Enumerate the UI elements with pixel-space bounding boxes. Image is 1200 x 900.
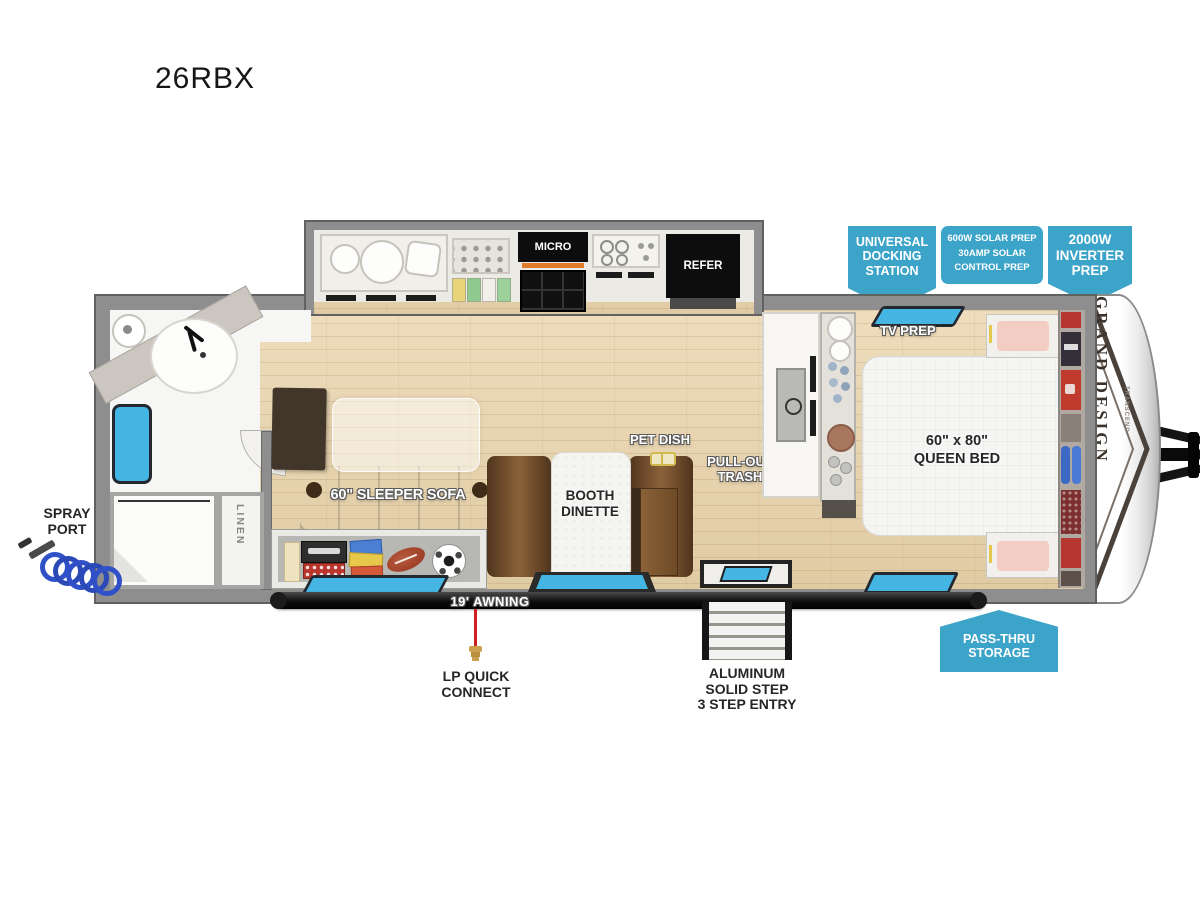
cabinet-handle	[989, 325, 992, 343]
dish-plate-large	[360, 240, 404, 284]
cabinet-handle	[989, 545, 992, 563]
lp-quick-connect-label: LP QUICK CONNECT	[430, 668, 522, 700]
wardrobe-item-mark	[1065, 384, 1075, 394]
bathroom-floor-ext	[255, 310, 311, 342]
game-box-label	[308, 548, 340, 554]
drawer-slot	[596, 272, 622, 278]
wardrobe-shelf	[1061, 414, 1081, 442]
hutch-cup	[828, 362, 837, 371]
brand-series-text: TRANSCEND	[1123, 386, 1129, 516]
tv-panel	[271, 388, 326, 471]
peninsula-faucet-icon	[785, 398, 802, 415]
sprayer-nozzle-icon	[17, 537, 32, 549]
cutting-board-yellow	[452, 278, 466, 302]
microwave-trim	[522, 263, 584, 268]
entry-door-edge	[632, 488, 640, 576]
game-box	[301, 541, 347, 563]
drawer-slot	[366, 295, 396, 301]
sleeper-sofa-label: 60" SLEEPER SOFA	[302, 487, 494, 503]
counter-slot	[810, 356, 816, 392]
cutting-board-white	[482, 278, 496, 302]
bedroom-window-bottom	[863, 572, 959, 594]
hutch-bowl	[827, 424, 855, 452]
toilet-detail	[123, 325, 132, 334]
entry-step-label: ALUMINUM SOLID STEP 3 STEP ENTRY	[688, 666, 806, 713]
pet-dish-icon	[650, 452, 676, 466]
awning-label: 19' AWNING	[400, 594, 580, 609]
cutting-board-green2	[497, 278, 511, 302]
burner-icon	[616, 254, 628, 266]
dish-plate-small	[330, 244, 360, 274]
awning-endcap	[970, 592, 987, 609]
burner-icon	[601, 254, 613, 266]
hitch-coupler	[1188, 432, 1199, 478]
hutch-cup	[841, 382, 850, 391]
drawer-slot	[326, 295, 356, 301]
entry-step-mat	[719, 566, 772, 582]
shower-rod	[118, 500, 210, 502]
lp-leader-line	[474, 609, 477, 647]
hutch-cup	[829, 378, 838, 387]
wardrobe-item	[1061, 490, 1081, 534]
burner-icon	[615, 240, 629, 254]
microwave: MICRO	[518, 232, 588, 262]
bed-cabinet-top	[986, 314, 1062, 358]
dinette-mat	[536, 575, 648, 589]
soccer-ball-icon	[432, 544, 466, 578]
awning-endcap	[270, 592, 287, 609]
callout-solar-prep: 600W SOLAR PREP 30AMP SOLAR CONTROL PREP	[941, 226, 1043, 284]
counter-slot	[810, 400, 816, 436]
awning-bar	[272, 592, 986, 609]
wardrobe-item	[1061, 312, 1081, 328]
queen-bed-label: 60" x 80" QUEEN BED	[872, 432, 1042, 468]
wardrobe-item	[1061, 571, 1081, 586]
callout-pass-thru-storage: PASS-THRU STORAGE	[940, 610, 1058, 672]
spray-port-label: SPRAY PORT	[28, 505, 106, 537]
pillow	[997, 541, 1049, 571]
shoe-icon	[1061, 446, 1070, 484]
hutch-cup	[833, 394, 842, 403]
bathroom-window	[112, 404, 152, 484]
drawer-slot	[628, 272, 654, 278]
knob-icon	[648, 243, 654, 249]
refrigerator-base	[670, 298, 736, 309]
hutch-plate	[829, 340, 851, 362]
shoe-icon	[1072, 446, 1081, 484]
callout-inverter-prep: 2000W INVERTER PREP	[1048, 226, 1132, 304]
cutting-board-green	[467, 278, 481, 302]
spice-rack	[452, 238, 510, 274]
wardrobe-item-label	[1064, 344, 1078, 350]
tv-prep-label: TV PREP	[880, 323, 936, 338]
pet-dish-label: PET DISH	[630, 432, 690, 447]
vanity-sink	[150, 318, 238, 394]
linen-label: LINEN	[234, 504, 246, 582]
linen-closet: LINEN	[218, 492, 264, 589]
dinette-bench-left	[487, 456, 551, 577]
refrigerator: REFER	[666, 234, 740, 298]
hutch-cup	[840, 462, 852, 474]
knob-icon	[643, 255, 649, 261]
hutch-cup	[840, 366, 849, 375]
hutch-cup	[830, 474, 842, 486]
bed-cabinet-bottom	[986, 532, 1062, 578]
football-lace	[394, 554, 417, 565]
hose-coil-icon	[92, 566, 122, 596]
sink-drain-icon	[200, 352, 206, 358]
pillow	[997, 321, 1049, 351]
stove-cooktop	[520, 270, 586, 312]
pet-dish-divider	[661, 454, 663, 464]
hutch-plate	[827, 316, 853, 342]
knob-icon	[638, 243, 644, 249]
entry-door	[640, 488, 678, 576]
lp-connector-icon	[472, 657, 479, 661]
dish-plate-square	[404, 240, 442, 278]
toy-box	[284, 542, 300, 582]
entry-steps	[702, 602, 792, 660]
page-title: 26RBX	[155, 62, 255, 96]
folding-table	[332, 398, 480, 472]
hutch-cup	[828, 456, 840, 468]
hutch-base	[822, 500, 856, 518]
floorplan-page: 26RBX UNIVERSAL DOCKING STATION 600W SOL…	[0, 0, 1200, 900]
booth-dinette-label: BOOTH DINETTE	[551, 488, 629, 520]
wardrobe-item	[1061, 538, 1081, 568]
burner-icon	[600, 240, 614, 254]
drawer-slot	[406, 295, 436, 301]
